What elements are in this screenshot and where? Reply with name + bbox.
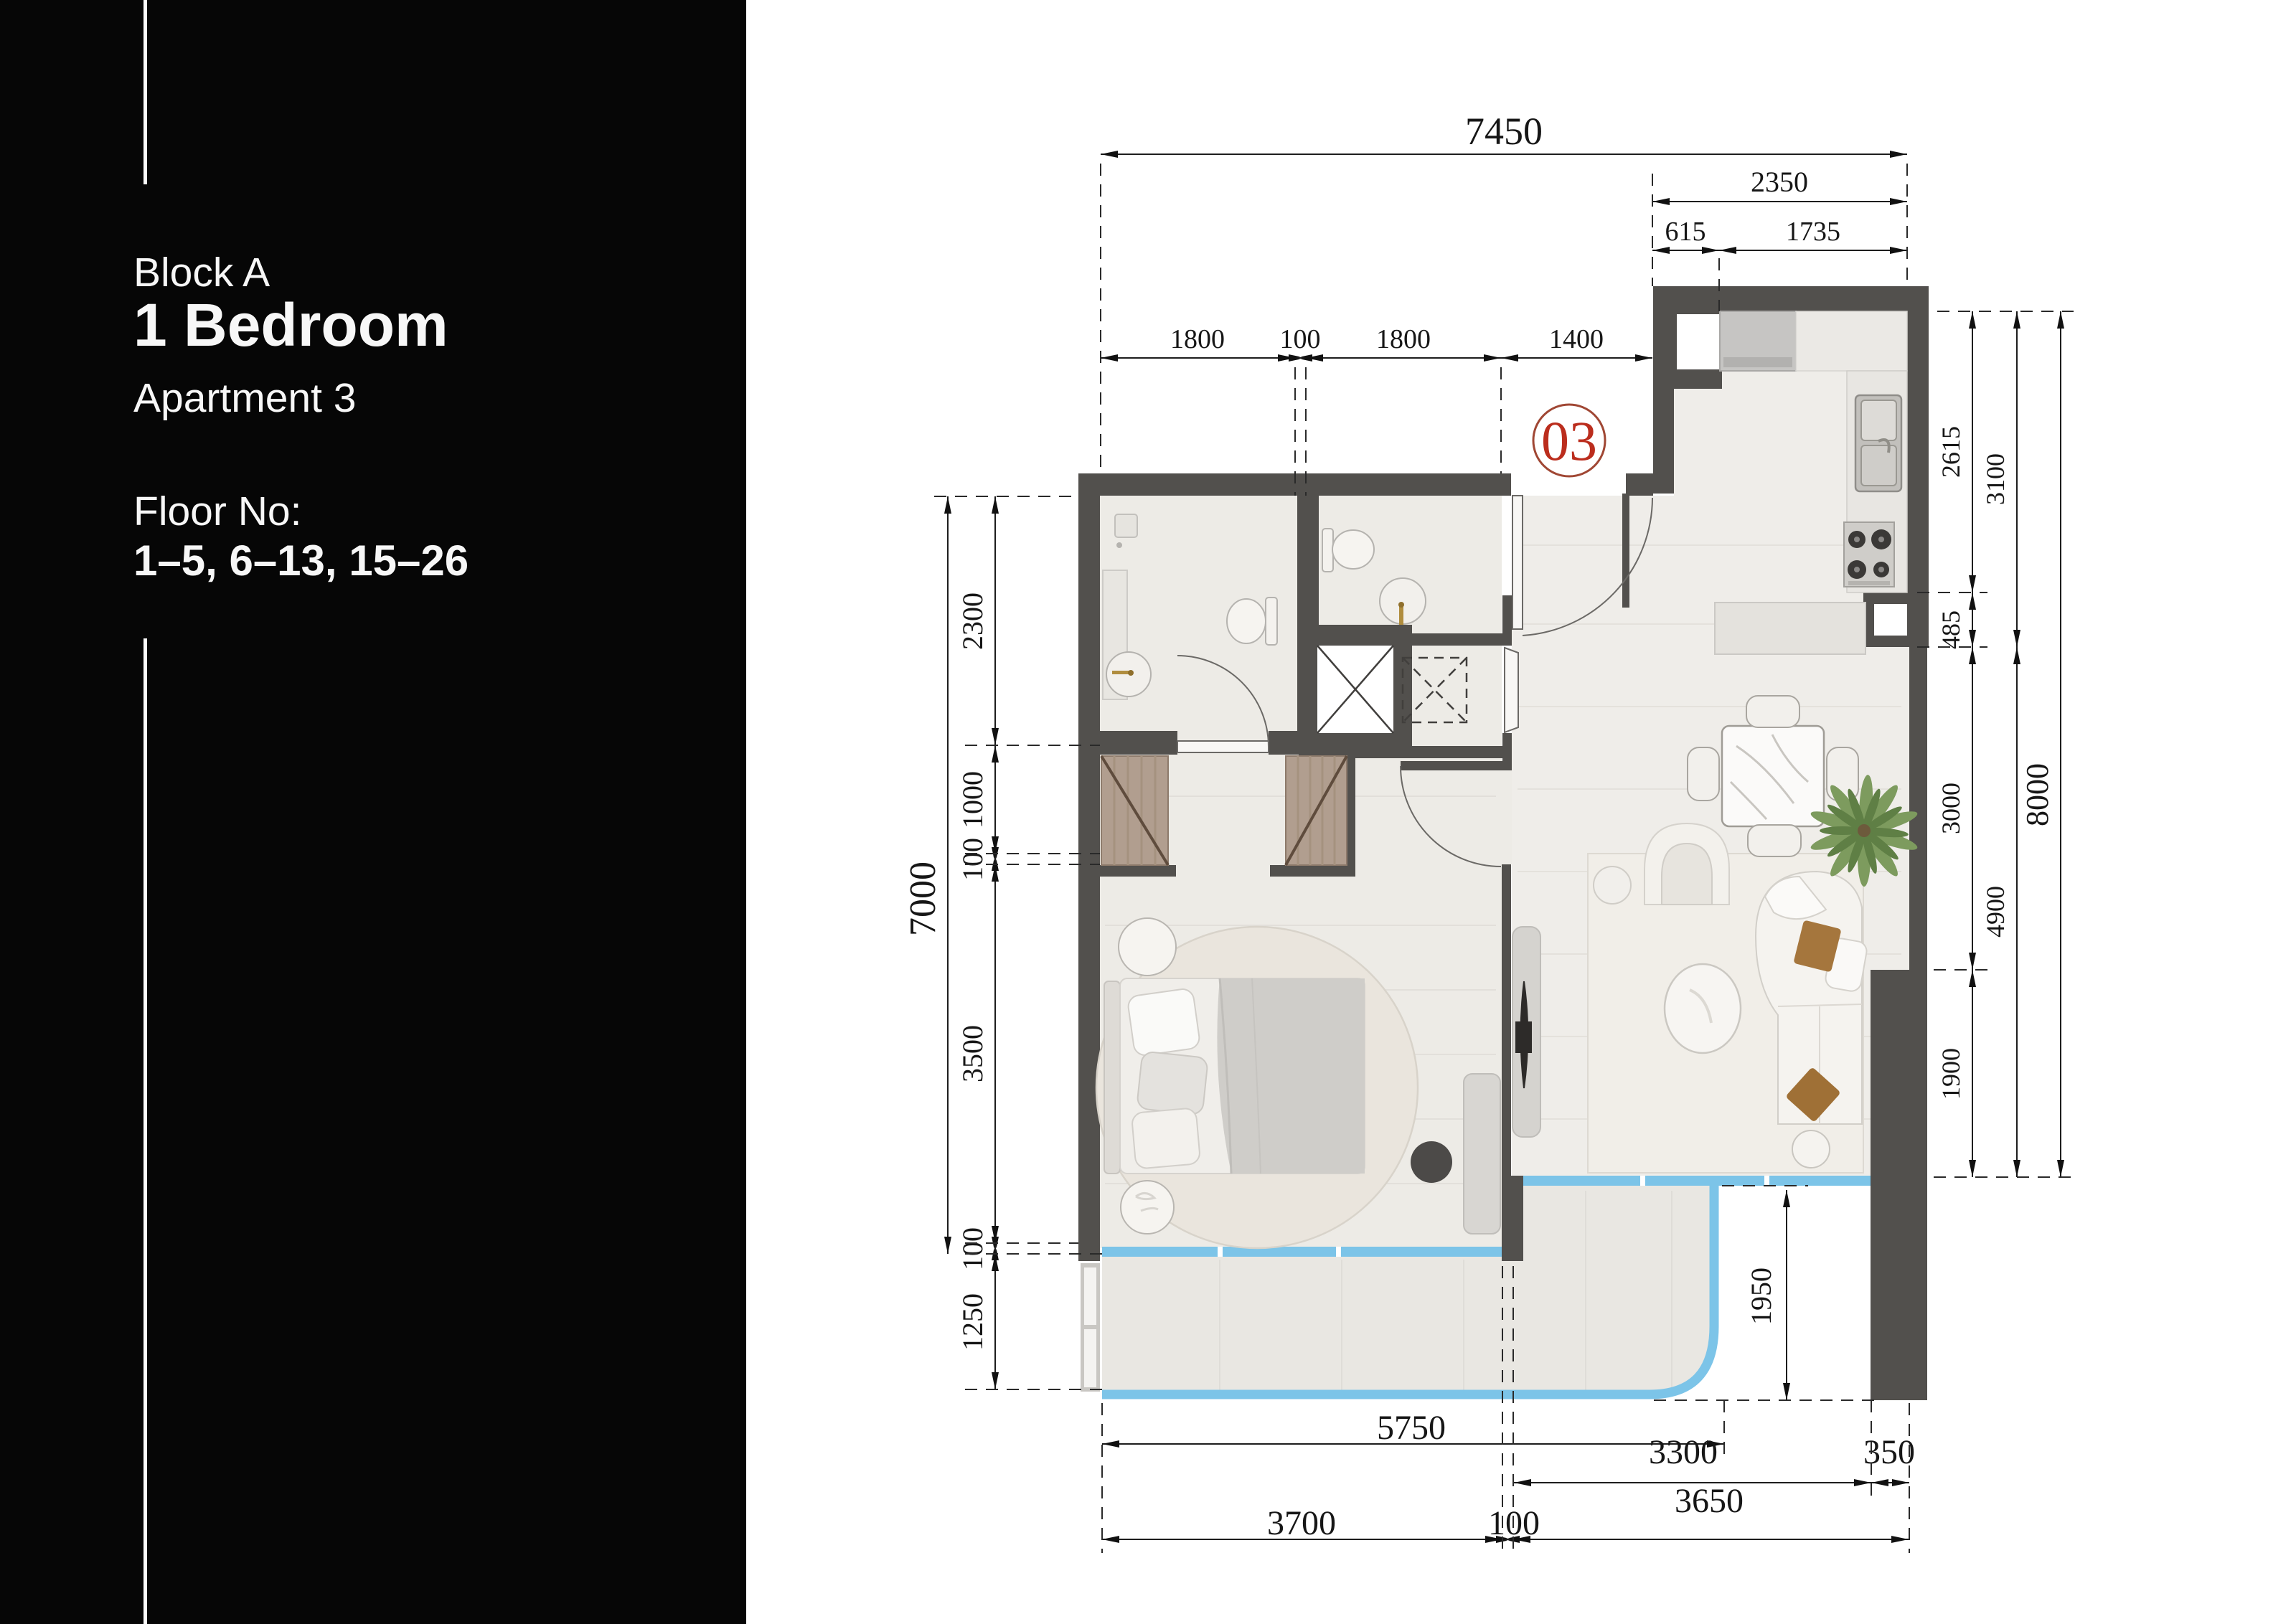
svg-text:1000: 1000	[956, 771, 989, 828]
svg-text:7450: 7450	[1465, 110, 1543, 153]
svg-text:4900: 4900	[1981, 886, 2010, 938]
svg-text:3650: 3650	[1675, 1482, 1744, 1520]
svg-text:100: 100	[956, 1227, 989, 1270]
svg-text:1735: 1735	[1786, 217, 1840, 247]
svg-text:3000: 3000	[1937, 783, 1965, 834]
svg-text:1400: 1400	[1549, 324, 1604, 354]
svg-text:1800: 1800	[1170, 324, 1225, 354]
svg-text:8000: 8000	[2020, 763, 2055, 826]
svg-text:3700: 3700	[1267, 1504, 1336, 1542]
svg-text:1950: 1950	[1745, 1267, 1777, 1325]
svg-text:03: 03	[1541, 410, 1597, 472]
svg-text:1250: 1250	[956, 1293, 989, 1351]
svg-text:615: 615	[1665, 217, 1706, 247]
svg-text:3500: 3500	[956, 1025, 989, 1082]
svg-text:1900: 1900	[1937, 1048, 1965, 1100]
svg-text:1800: 1800	[1376, 324, 1431, 354]
svg-text:100: 100	[1280, 324, 1321, 354]
svg-text:7000: 7000	[903, 861, 944, 936]
svg-text:3300: 3300	[1649, 1433, 1718, 1471]
svg-text:2350: 2350	[1751, 166, 1808, 198]
svg-text:100: 100	[956, 838, 989, 881]
svg-text:2300: 2300	[956, 593, 989, 650]
svg-text:485: 485	[1937, 610, 1965, 649]
svg-text:3100: 3100	[1981, 453, 2010, 505]
svg-text:5750: 5750	[1377, 1409, 1446, 1447]
svg-text:2615: 2615	[1937, 426, 1965, 478]
